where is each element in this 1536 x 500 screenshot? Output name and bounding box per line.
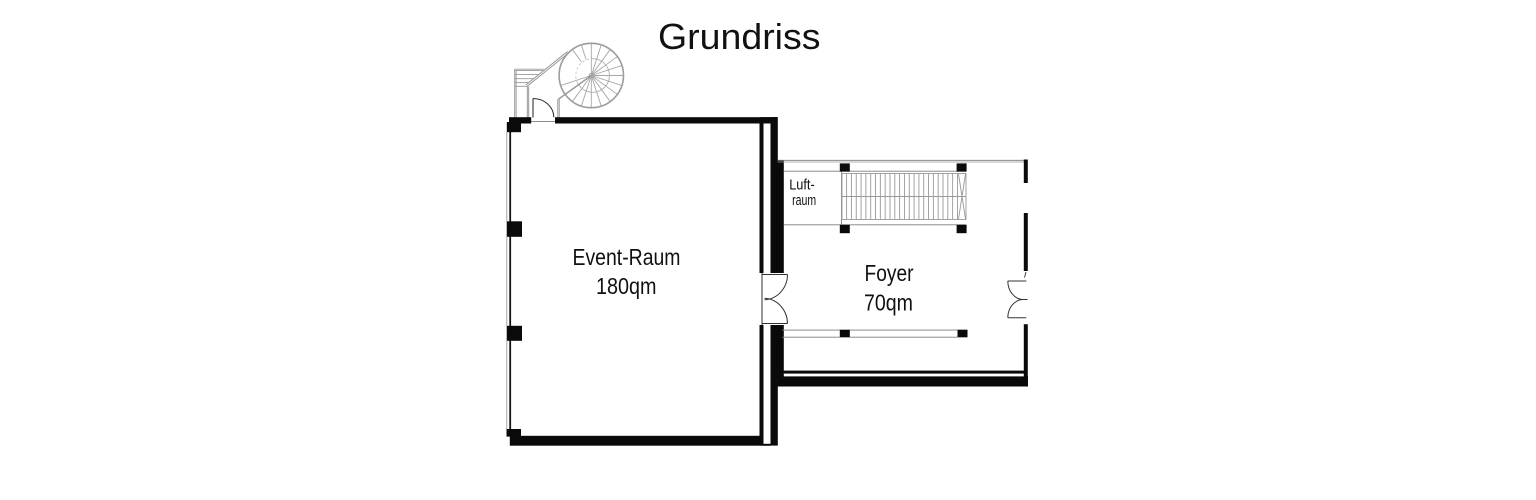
svg-text:180qm: 180qm <box>596 273 657 299</box>
svg-text:70qm: 70qm <box>864 289 913 315</box>
svg-text:Grundriss: Grundriss <box>658 16 821 57</box>
svg-text:Foyer: Foyer <box>865 260 914 286</box>
svg-text:Luft-: Luft- <box>789 177 815 193</box>
svg-text:raum: raum <box>792 193 816 209</box>
svg-text:Event-Raum: Event-Raum <box>573 244 681 270</box>
